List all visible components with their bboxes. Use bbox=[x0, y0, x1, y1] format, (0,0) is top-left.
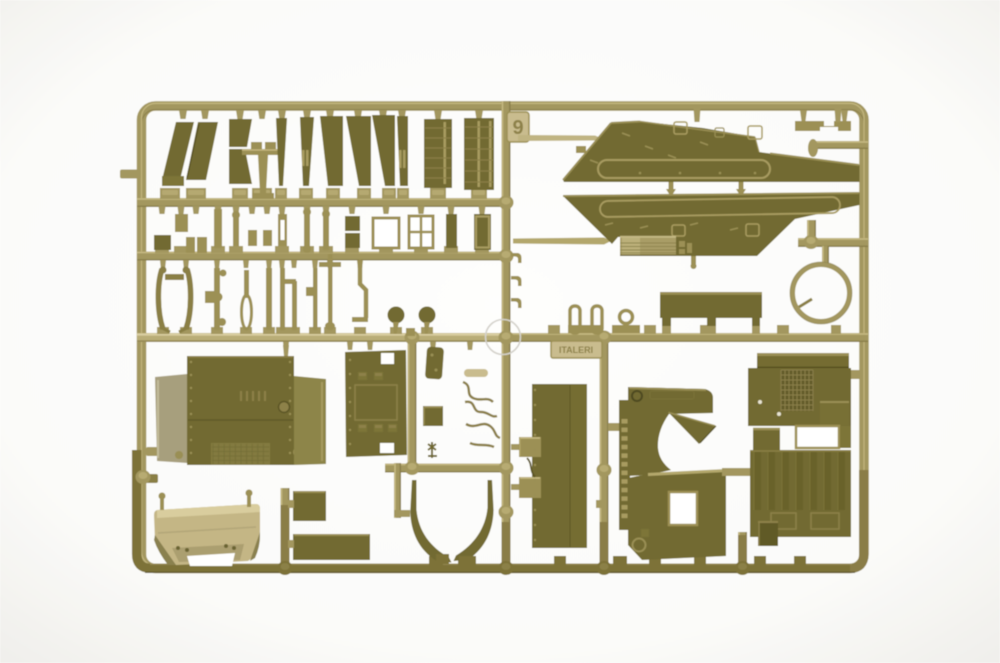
svg-text:ITALERI: ITALERI bbox=[559, 345, 593, 355]
